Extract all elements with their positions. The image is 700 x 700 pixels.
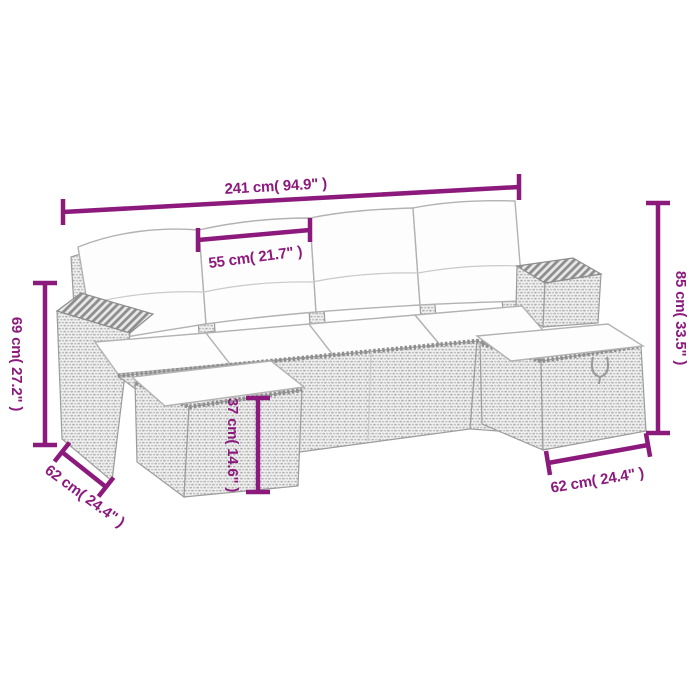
dimension-label-total-width: 241 cm( 94.9" ) (224, 175, 327, 198)
back-cushion (310, 208, 420, 312)
dimension-label-right-depth: 62 cm( 24.4" ) (549, 464, 645, 496)
sofa-illustration (57, 201, 646, 497)
dimension-label-armrest-height: 69 cm( 27.2" ) (8, 317, 25, 412)
dimension-line-back-height (646, 203, 670, 433)
product-dimension-diagram: 241 cm( 94.9" ) 55 cm( 21.7" ) 69 cm( 27… (0, 0, 700, 700)
dimension-label-back-height: 85 cm( 33.5" ) (672, 271, 689, 366)
back-cushion (413, 201, 523, 305)
dimension-label-ottoman-height: 37 cm( 14.6" ) (224, 398, 241, 493)
right-ottoman (477, 324, 646, 450)
dimension-line-armrest-height (33, 283, 57, 445)
left-ottoman (132, 361, 304, 497)
sofa-dimension-figure: 241 cm( 94.9" ) 55 cm( 21.7" ) 69 cm( 27… (0, 0, 700, 700)
right-ottoman-front (541, 346, 646, 450)
left-ottoman-front (184, 390, 302, 497)
